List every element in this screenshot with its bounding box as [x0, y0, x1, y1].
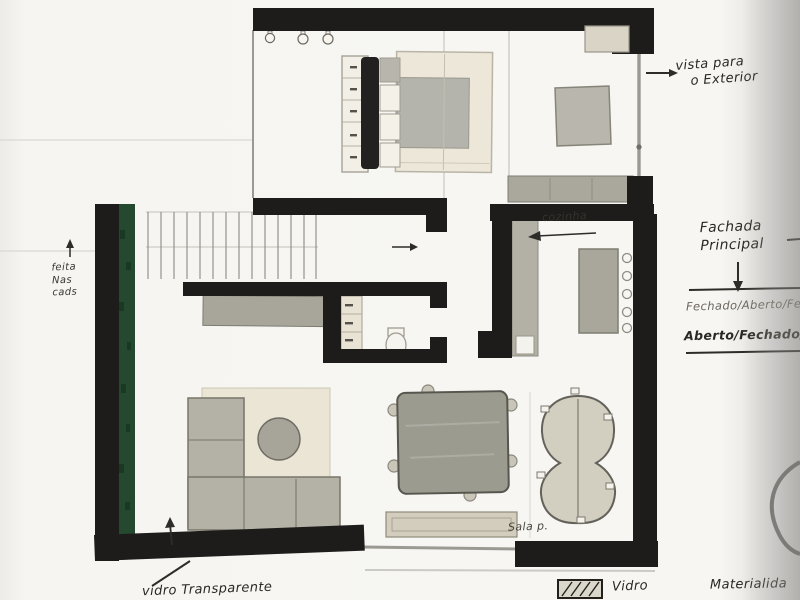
bedroom-sideboard: [508, 176, 633, 202]
page-edge-curve: [772, 462, 800, 554]
green-wall-strip: [117, 204, 135, 542]
vista-exterior-arrow: [646, 69, 678, 77]
vista-exterior-label: vista para o Exterior: [675, 53, 758, 91]
left-note-line3: cads: [52, 287, 77, 300]
estado-line2-label: Aberto/Fechado/Ab: [684, 326, 800, 344]
cozinha-label: cozinha: [542, 209, 588, 225]
estado-underline-bottom: [686, 351, 800, 353]
kitchen-island: [579, 249, 618, 333]
bed: [395, 52, 492, 173]
coffee-table: [258, 418, 300, 460]
wall-right: [633, 214, 657, 566]
estado-underline-top: [689, 288, 800, 290]
wall-bottom-right: [515, 541, 658, 567]
left-note-line1: feita: [51, 262, 76, 275]
fachada-right-dash: [787, 239, 800, 240]
stairs-direction-arrow: [392, 243, 418, 251]
cozinha-arrow: [528, 231, 596, 241]
glass-wall-marker-dot: [636, 144, 641, 149]
staircase: [146, 212, 318, 279]
legend-materialidade-label: Materialida: [710, 576, 787, 594]
wall-bath-bottom-cap: [430, 337, 447, 363]
bed-headboard: [361, 57, 379, 169]
left-note-line2: Nas: [52, 274, 77, 287]
dining-table: [397, 391, 509, 494]
estado-line1-label: Fechado/Aberto/Fe: [686, 296, 800, 313]
corner-bench: [585, 26, 629, 52]
fachada-down-arrow: [733, 262, 743, 292]
legend-vidro-swatch: [558, 580, 602, 598]
glass-wall-bottom: [363, 547, 518, 549]
fachada-line2: Principal: [700, 235, 764, 255]
fachada-principal-label: Fachada Principal: [699, 218, 764, 255]
wall-door-jamb: [426, 198, 447, 232]
wall-hall: [183, 282, 447, 296]
left-note-arrow: [66, 239, 74, 257]
wall-left: [95, 204, 119, 561]
floor-plan-sheet: vista para o Exterior Fachada Principal …: [0, 0, 800, 600]
bedroom-armchair: [555, 86, 611, 146]
dining-bench: [386, 512, 517, 537]
fachada-line1: Fachada: [699, 218, 763, 238]
legend-vidro-label: Vidro: [612, 578, 649, 595]
wall-kitchen-foot: [478, 331, 512, 358]
wall-bath-bottom: [323, 349, 447, 363]
peanut-seat: [537, 388, 615, 523]
wall-mid-left: [253, 198, 447, 215]
left-note-label: feita Nas cads: [51, 262, 77, 300]
wall-bath-top-cap: [430, 282, 447, 308]
kitchen-stools-squiggle: [623, 254, 632, 333]
hall-sideboard: [203, 295, 325, 326]
sala-label: Sala p.: [508, 519, 549, 534]
bathroom-shelf: [341, 296, 362, 350]
